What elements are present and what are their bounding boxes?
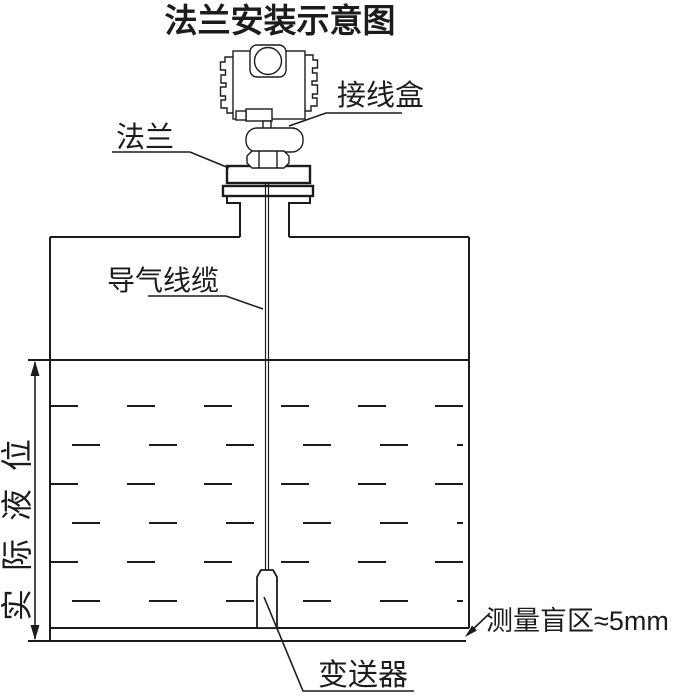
callout-blind-zone: 测量盲区≈5mm: [465, 606, 669, 637]
air-cable-leader-line: [148, 296, 263, 309]
actual-level-label: 实际液位: [0, 421, 35, 621]
right-rib-cap: [305, 55, 318, 111]
dimension-arrow-up-icon: [31, 361, 40, 376]
flange-label: 法兰: [116, 121, 174, 154]
terminal-block: [246, 109, 272, 121]
air-cable-line: [266, 184, 269, 571]
page-title: 法兰安装示意图: [165, 2, 396, 39]
liquid-fill: [28, 360, 469, 601]
junction-box-label: 接线盒: [337, 79, 424, 112]
liquid-hatch-dashes: [50, 406, 463, 601]
dimension-arrow-down-icon: [31, 625, 40, 640]
left-rib-cap: [221, 57, 234, 113]
callout-transmitter: 变送器: [264, 597, 414, 692]
tank-outline: [28, 237, 469, 641]
transmitter-head: [221, 45, 318, 168]
head-display-window: [255, 48, 282, 75]
air-cable-label: 导气线缆: [107, 265, 219, 296]
hex-nut: [247, 151, 289, 168]
transmitter-label: 变送器: [318, 659, 408, 692]
flange-leader-line: [112, 152, 229, 168]
callout-air-cable: 导气线缆: [107, 265, 263, 309]
callout-flange: 法兰: [112, 121, 229, 168]
dimension-actual-level: 实际液位: [0, 361, 40, 640]
junction-box-leader-line: [289, 113, 402, 126]
terminal-block-side: [236, 111, 246, 120]
head-neck-connector: [246, 128, 303, 152]
blind-zone-label: 测量盲区≈5mm: [486, 606, 669, 636]
diagram-page: 法兰安装示意图: [0, 0, 700, 700]
flange-installation-diagram: 法兰安装示意图: [0, 0, 700, 700]
